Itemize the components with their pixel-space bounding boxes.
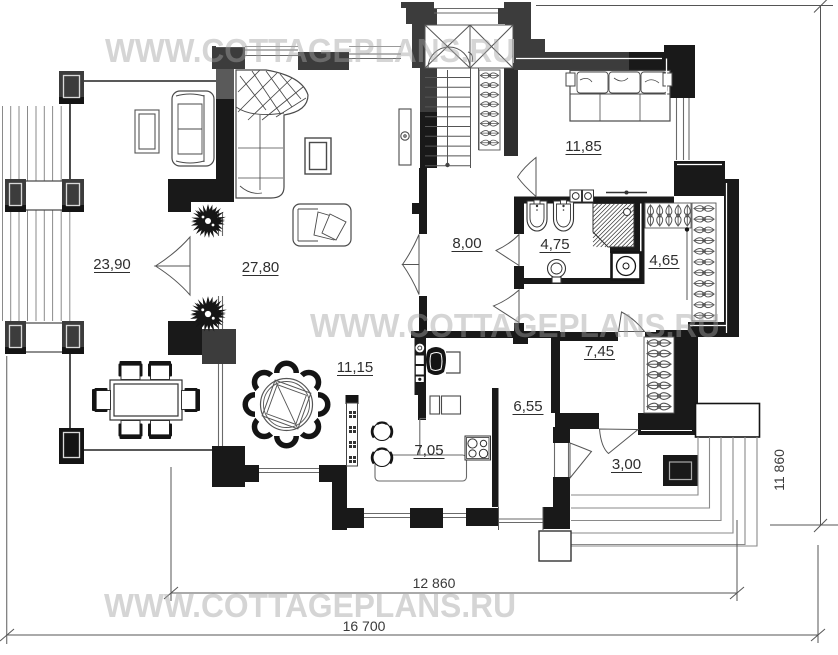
svg-text:23,90: 23,90 xyxy=(93,256,131,273)
svg-text:27,80: 27,80 xyxy=(242,259,280,276)
svg-text:4,65: 4,65 xyxy=(649,252,678,269)
svg-text:7,05: 7,05 xyxy=(414,442,443,459)
svg-text:WWW.COTTAGEPLANS.RU: WWW.COTTAGEPLANS.RU xyxy=(104,587,516,624)
svg-text:11,15: 11,15 xyxy=(337,359,373,376)
svg-text:WWW.COTTAGEPLANS.RU: WWW.COTTAGEPLANS.RU xyxy=(310,307,720,344)
svg-text:6,55: 6,55 xyxy=(513,398,542,415)
svg-text:4,75: 4,75 xyxy=(540,236,569,253)
svg-text:8,00: 8,00 xyxy=(452,235,481,252)
svg-text:11,85: 11,85 xyxy=(565,138,601,155)
svg-text:WWW.COTTAGEPLANS.RU: WWW.COTTAGEPLANS.RU xyxy=(105,32,515,69)
svg-text:3,00: 3,00 xyxy=(612,456,641,473)
svg-text:7,45: 7,45 xyxy=(585,343,614,360)
svg-text:11 860: 11 860 xyxy=(771,449,787,491)
